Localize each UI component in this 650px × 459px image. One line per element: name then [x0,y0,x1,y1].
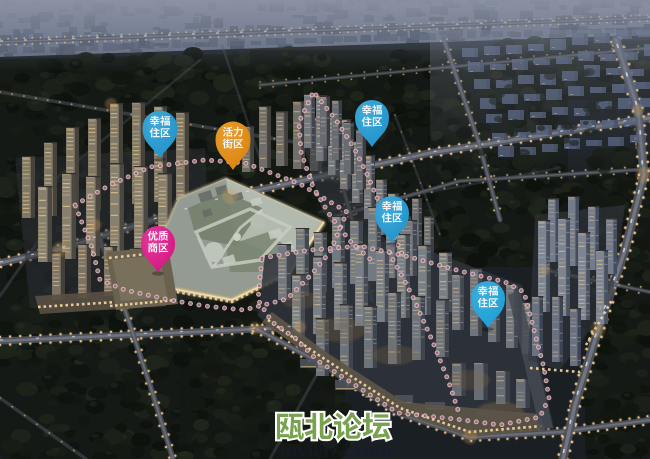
svg-text:my0574.com: my0574.com [280,438,393,459]
